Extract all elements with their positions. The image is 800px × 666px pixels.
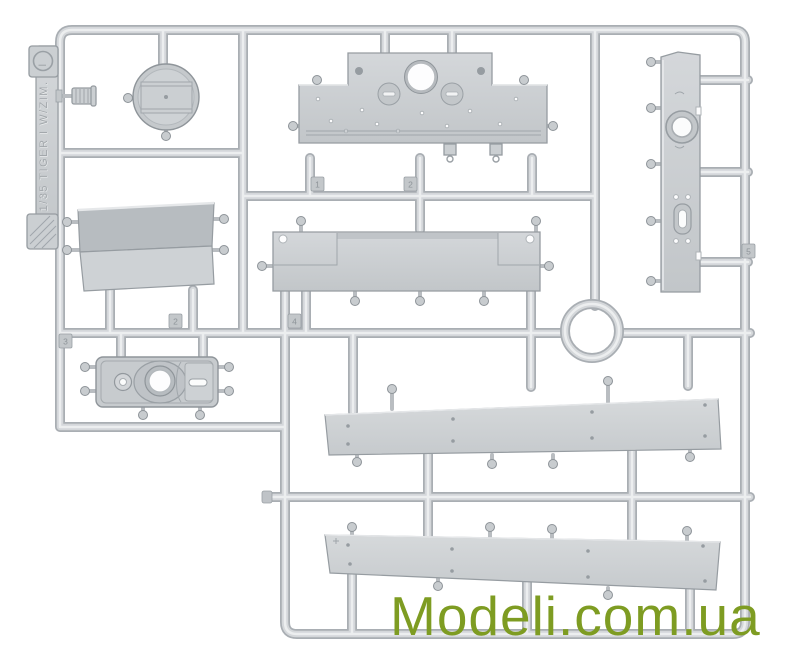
glacis-panel	[78, 203, 214, 291]
runner-stub	[262, 491, 272, 503]
sprue-letter: I	[37, 62, 49, 67]
rear-hull-plate	[661, 52, 701, 292]
svg-text:3: 3	[63, 337, 68, 347]
upper-fender	[325, 399, 721, 455]
number-tag: 3	[59, 334, 72, 348]
tab-label: 1/35 TIGER I W/ZIM.	[38, 81, 50, 212]
watermark-text: Modeli.com.ua	[390, 584, 761, 648]
sprue-tab: I 1/35 TIGER I W/ZIM. 1/35 TIGER I W/ZIM…	[27, 46, 62, 249]
number-tag: 2	[169, 314, 182, 328]
hull-floor-panel	[273, 232, 540, 291]
deck-brackets	[444, 144, 502, 162]
transmission-cover	[96, 357, 218, 407]
number-tag: 4	[288, 314, 301, 328]
knurled-knob	[72, 86, 96, 106]
svg-text:5: 5	[746, 247, 751, 257]
engine-deck-panel	[299, 53, 547, 162]
svg-text:1: 1	[315, 180, 320, 190]
svg-text:4: 4	[292, 317, 297, 327]
number-tag: 2	[404, 177, 417, 191]
svg-text:2: 2	[173, 317, 178, 327]
sprue-photo: I 1/35 TIGER I W/ZIM. 1/35 TIGER I W/ZIM…	[0, 0, 800, 666]
runner-ring	[565, 304, 619, 358]
lower-fender	[325, 535, 720, 590]
svg-text:2: 2	[408, 180, 413, 190]
number-tag: 1	[311, 177, 324, 191]
round-hatch	[133, 64, 199, 130]
sprue-drawing: I 1/35 TIGER I W/ZIM. 1/35 TIGER I W/ZIM…	[0, 0, 800, 666]
number-tag: 5	[742, 244, 755, 258]
